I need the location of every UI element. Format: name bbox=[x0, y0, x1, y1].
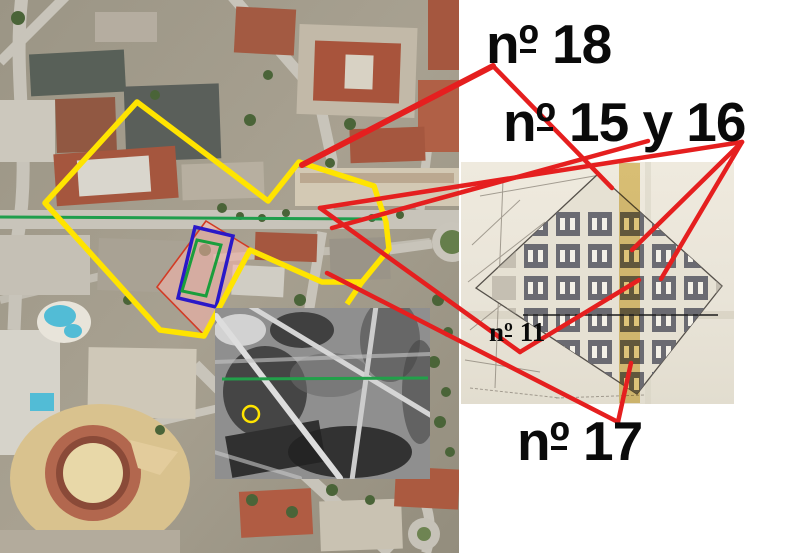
inset-section-line-green bbox=[222, 378, 428, 379]
label-no15y16: nº 15 y 16 bbox=[503, 95, 746, 150]
ordinal-indicator: º bbox=[504, 319, 513, 346]
figure-graphics bbox=[0, 0, 806, 553]
label-no11: nº 11 bbox=[489, 319, 545, 346]
ordinal-indicator: º bbox=[550, 414, 569, 469]
historical-plan bbox=[461, 162, 740, 404]
label-no17: nº 17 bbox=[517, 414, 642, 469]
ordinal-indicator: º bbox=[536, 95, 555, 150]
bw-aerial-inset bbox=[214, 298, 438, 480]
figure-canvas: nº 18 nº 15 y 16 nº 11 nº 17 bbox=[0, 0, 806, 553]
label-no18: nº 18 bbox=[486, 17, 611, 72]
ordinal-indicator: º bbox=[519, 17, 538, 72]
